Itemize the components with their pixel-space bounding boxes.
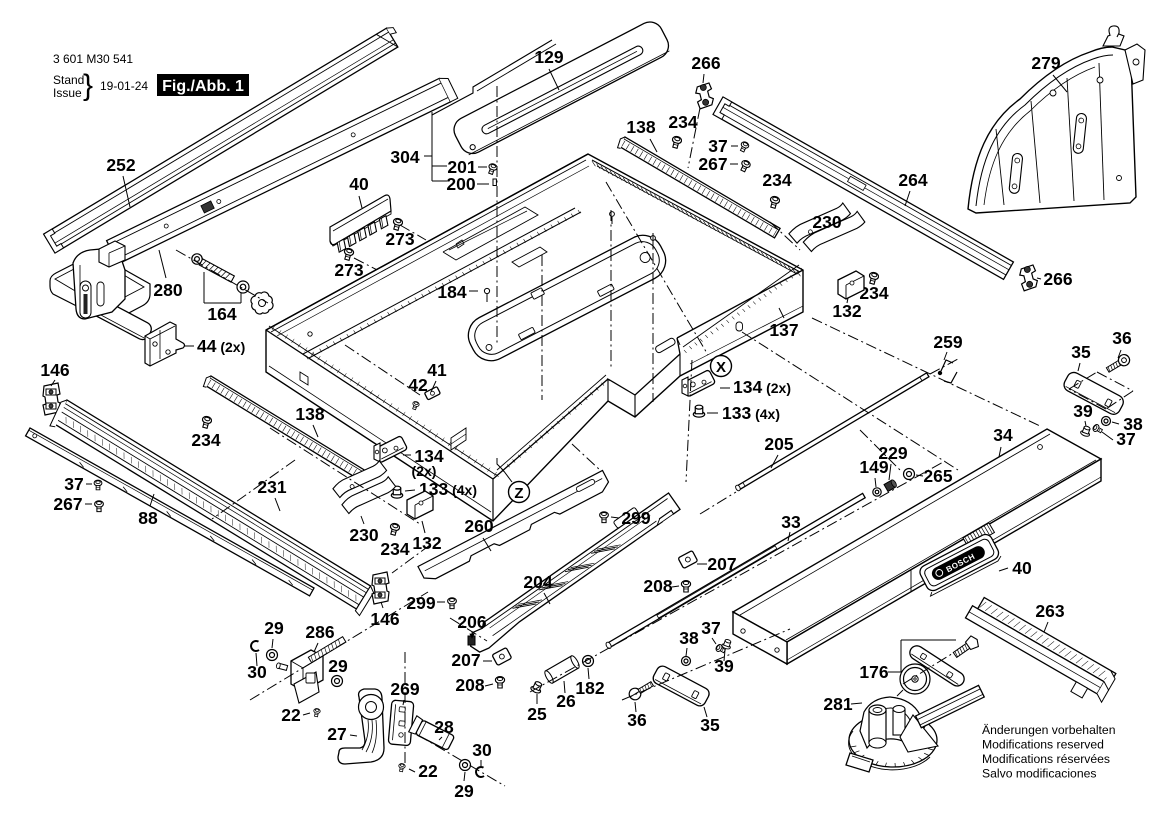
svg-text:137: 137 (769, 320, 798, 340)
svg-text:37: 37 (708, 136, 727, 156)
svg-text:19-01-24: 19-01-24 (100, 79, 148, 93)
svg-text:138: 138 (626, 117, 655, 137)
svg-text:Z: Z (514, 485, 523, 502)
svg-text:36: 36 (1112, 328, 1132, 348)
svg-text:138: 138 (295, 404, 324, 424)
svg-text:35: 35 (700, 715, 720, 735)
svg-text:208: 208 (643, 576, 672, 596)
svg-text:Änderungen vorbehalten: Änderungen vorbehalten (982, 723, 1116, 737)
svg-text:132: 132 (412, 533, 441, 553)
svg-text:37: 37 (64, 474, 83, 494)
svg-text:39: 39 (1073, 401, 1093, 421)
svg-text:286: 286 (305, 622, 334, 642)
svg-text:27: 27 (327, 724, 346, 744)
svg-text:176: 176 (859, 662, 888, 682)
svg-text:266: 266 (1043, 269, 1072, 289)
svg-text:Salvo modificaciones: Salvo modificaciones (982, 767, 1096, 781)
svg-text:Modifications reserved: Modifications reserved (982, 738, 1104, 752)
svg-text:88: 88 (138, 508, 158, 528)
svg-text:129: 129 (534, 47, 563, 67)
svg-text:Fig./Abb. 1: Fig./Abb. 1 (162, 78, 244, 95)
svg-text:234: 234 (668, 112, 697, 132)
svg-text:299: 299 (621, 508, 650, 528)
svg-text:133 (4x): 133 (4x) (722, 403, 780, 423)
svg-text:3 601 M30 541: 3 601 M30 541 (53, 52, 133, 66)
svg-text:134 (2x): 134 (2x) (733, 377, 791, 397)
svg-text:208: 208 (455, 675, 484, 695)
svg-text:37: 37 (1116, 429, 1135, 449)
svg-text:182: 182 (575, 678, 604, 698)
svg-text:35: 35 (1071, 342, 1091, 362)
svg-text:273: 273 (385, 229, 414, 249)
svg-text:200: 200 (446, 174, 475, 194)
svg-text:164: 164 (207, 304, 236, 324)
svg-text:29: 29 (328, 656, 348, 676)
svg-text:280: 280 (153, 280, 182, 300)
svg-text:234: 234 (380, 539, 409, 559)
svg-text:22: 22 (418, 761, 438, 781)
svg-text:234: 234 (762, 170, 791, 190)
svg-text:29: 29 (454, 781, 474, 801)
svg-text:229: 229 (878, 443, 907, 463)
svg-text:22: 22 (281, 705, 301, 725)
svg-text:29: 29 (264, 618, 284, 638)
svg-text:}: } (83, 69, 93, 102)
svg-text:34: 34 (993, 425, 1013, 445)
svg-text:Modifications réservées: Modifications réservées (982, 752, 1110, 766)
svg-text:40: 40 (349, 174, 369, 194)
svg-text:230: 230 (349, 525, 378, 545)
svg-text:37: 37 (701, 618, 720, 638)
svg-text:264: 264 (898, 170, 927, 190)
svg-text:30: 30 (472, 740, 492, 760)
svg-text:26: 26 (556, 691, 576, 711)
svg-text:(2x): (2x) (412, 463, 437, 479)
svg-text:279: 279 (1031, 53, 1060, 73)
svg-text:Issue: Issue (53, 86, 82, 100)
svg-text:X: X (716, 359, 726, 376)
svg-text:40: 40 (1012, 558, 1032, 578)
svg-text:25: 25 (527, 704, 547, 724)
svg-text:281: 281 (823, 694, 852, 714)
svg-text:252: 252 (106, 155, 135, 175)
svg-text:260: 260 (464, 516, 493, 536)
svg-text:41: 41 (427, 360, 447, 380)
svg-text:132: 132 (832, 301, 861, 321)
svg-text:267: 267 (698, 154, 727, 174)
svg-text:273: 273 (334, 260, 363, 280)
svg-text:304: 304 (390, 147, 419, 167)
svg-text:184: 184 (437, 282, 466, 302)
svg-text:33: 33 (781, 512, 801, 532)
svg-text:265: 265 (923, 466, 952, 486)
svg-text:267: 267 (53, 494, 82, 514)
svg-text:205: 205 (764, 434, 793, 454)
svg-text:146: 146 (40, 360, 69, 380)
svg-text:Stand: Stand (53, 73, 84, 87)
svg-text:263: 263 (1035, 601, 1064, 621)
svg-text:36: 36 (627, 710, 647, 730)
svg-text:259: 259 (933, 332, 962, 352)
svg-text:206: 206 (457, 612, 486, 632)
svg-text:230: 230 (812, 212, 841, 232)
svg-text:231: 231 (257, 477, 286, 497)
svg-text:28: 28 (434, 717, 454, 737)
svg-text:44 (2x): 44 (2x) (197, 336, 245, 356)
svg-text:204: 204 (523, 572, 552, 592)
svg-text:207: 207 (451, 650, 480, 670)
svg-text:42: 42 (408, 375, 428, 395)
svg-text:38: 38 (679, 628, 699, 648)
svg-text:234: 234 (191, 430, 220, 450)
svg-text:266: 266 (691, 53, 720, 73)
